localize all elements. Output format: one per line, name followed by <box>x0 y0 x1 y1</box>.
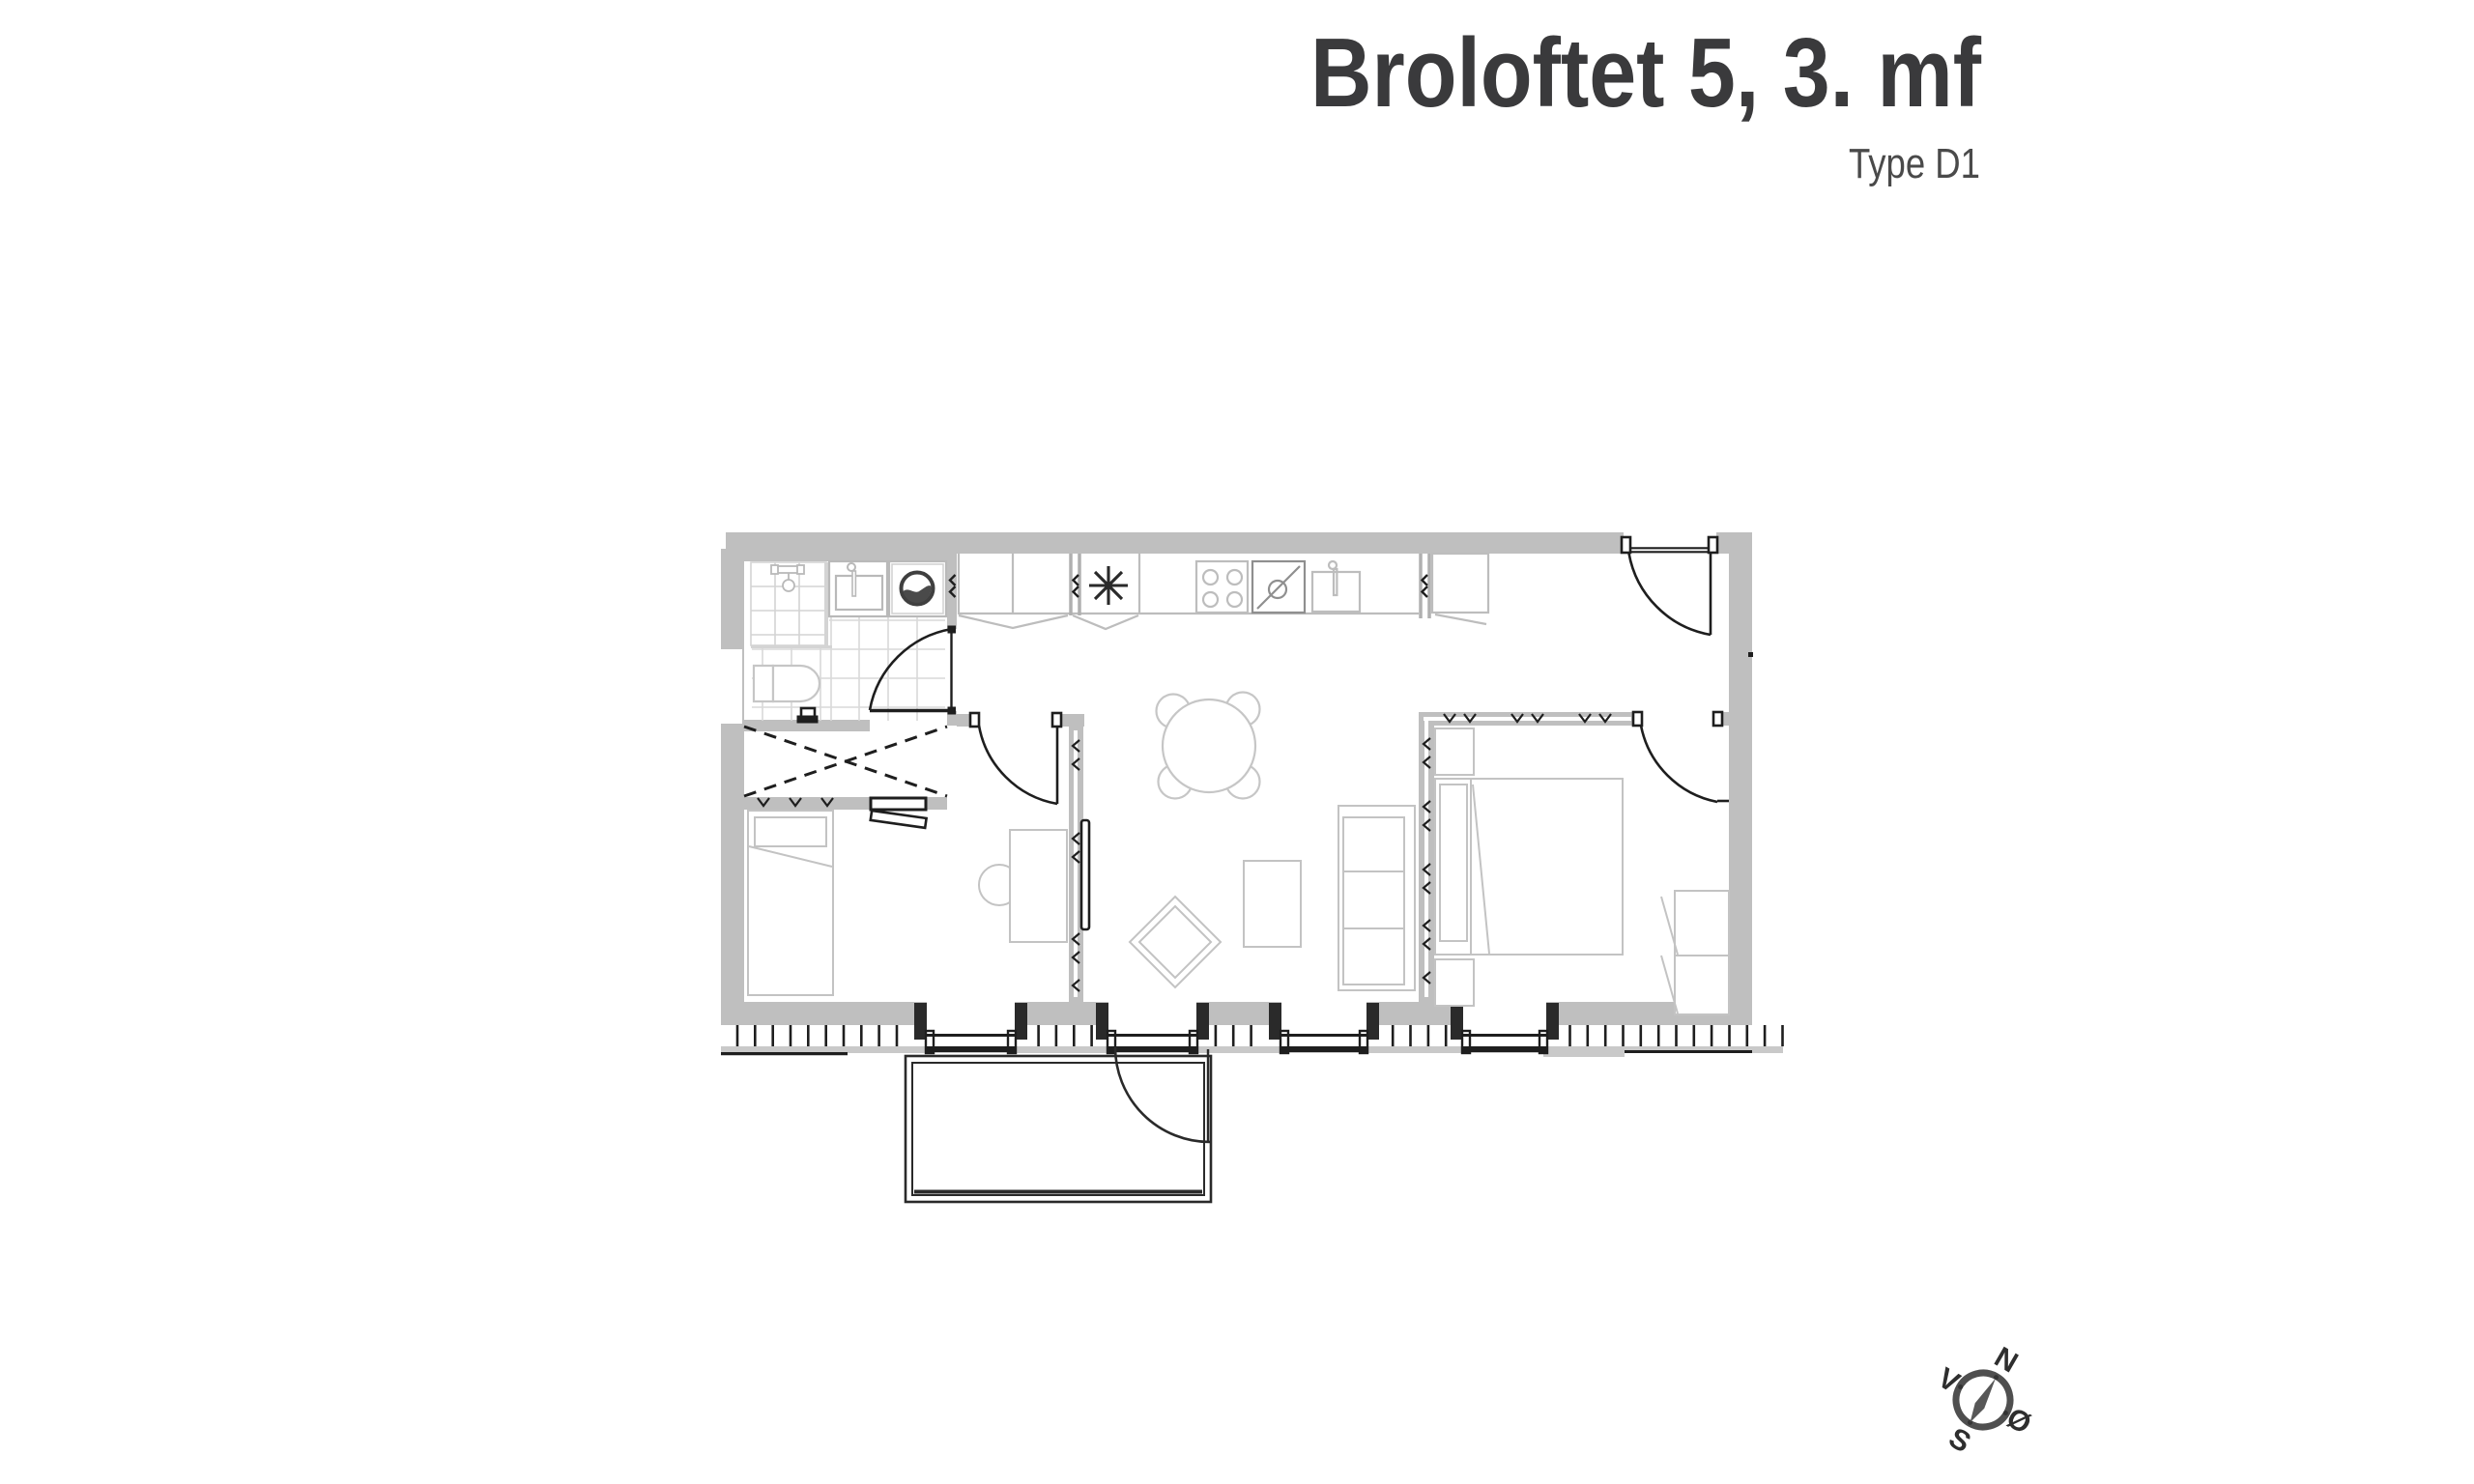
svg-text:Broloftet 5, 3. mf: Broloftet 5, 3. mf <box>1310 19 1981 128</box>
svg-text:Type D1: Type D1 <box>1849 140 1980 187</box>
